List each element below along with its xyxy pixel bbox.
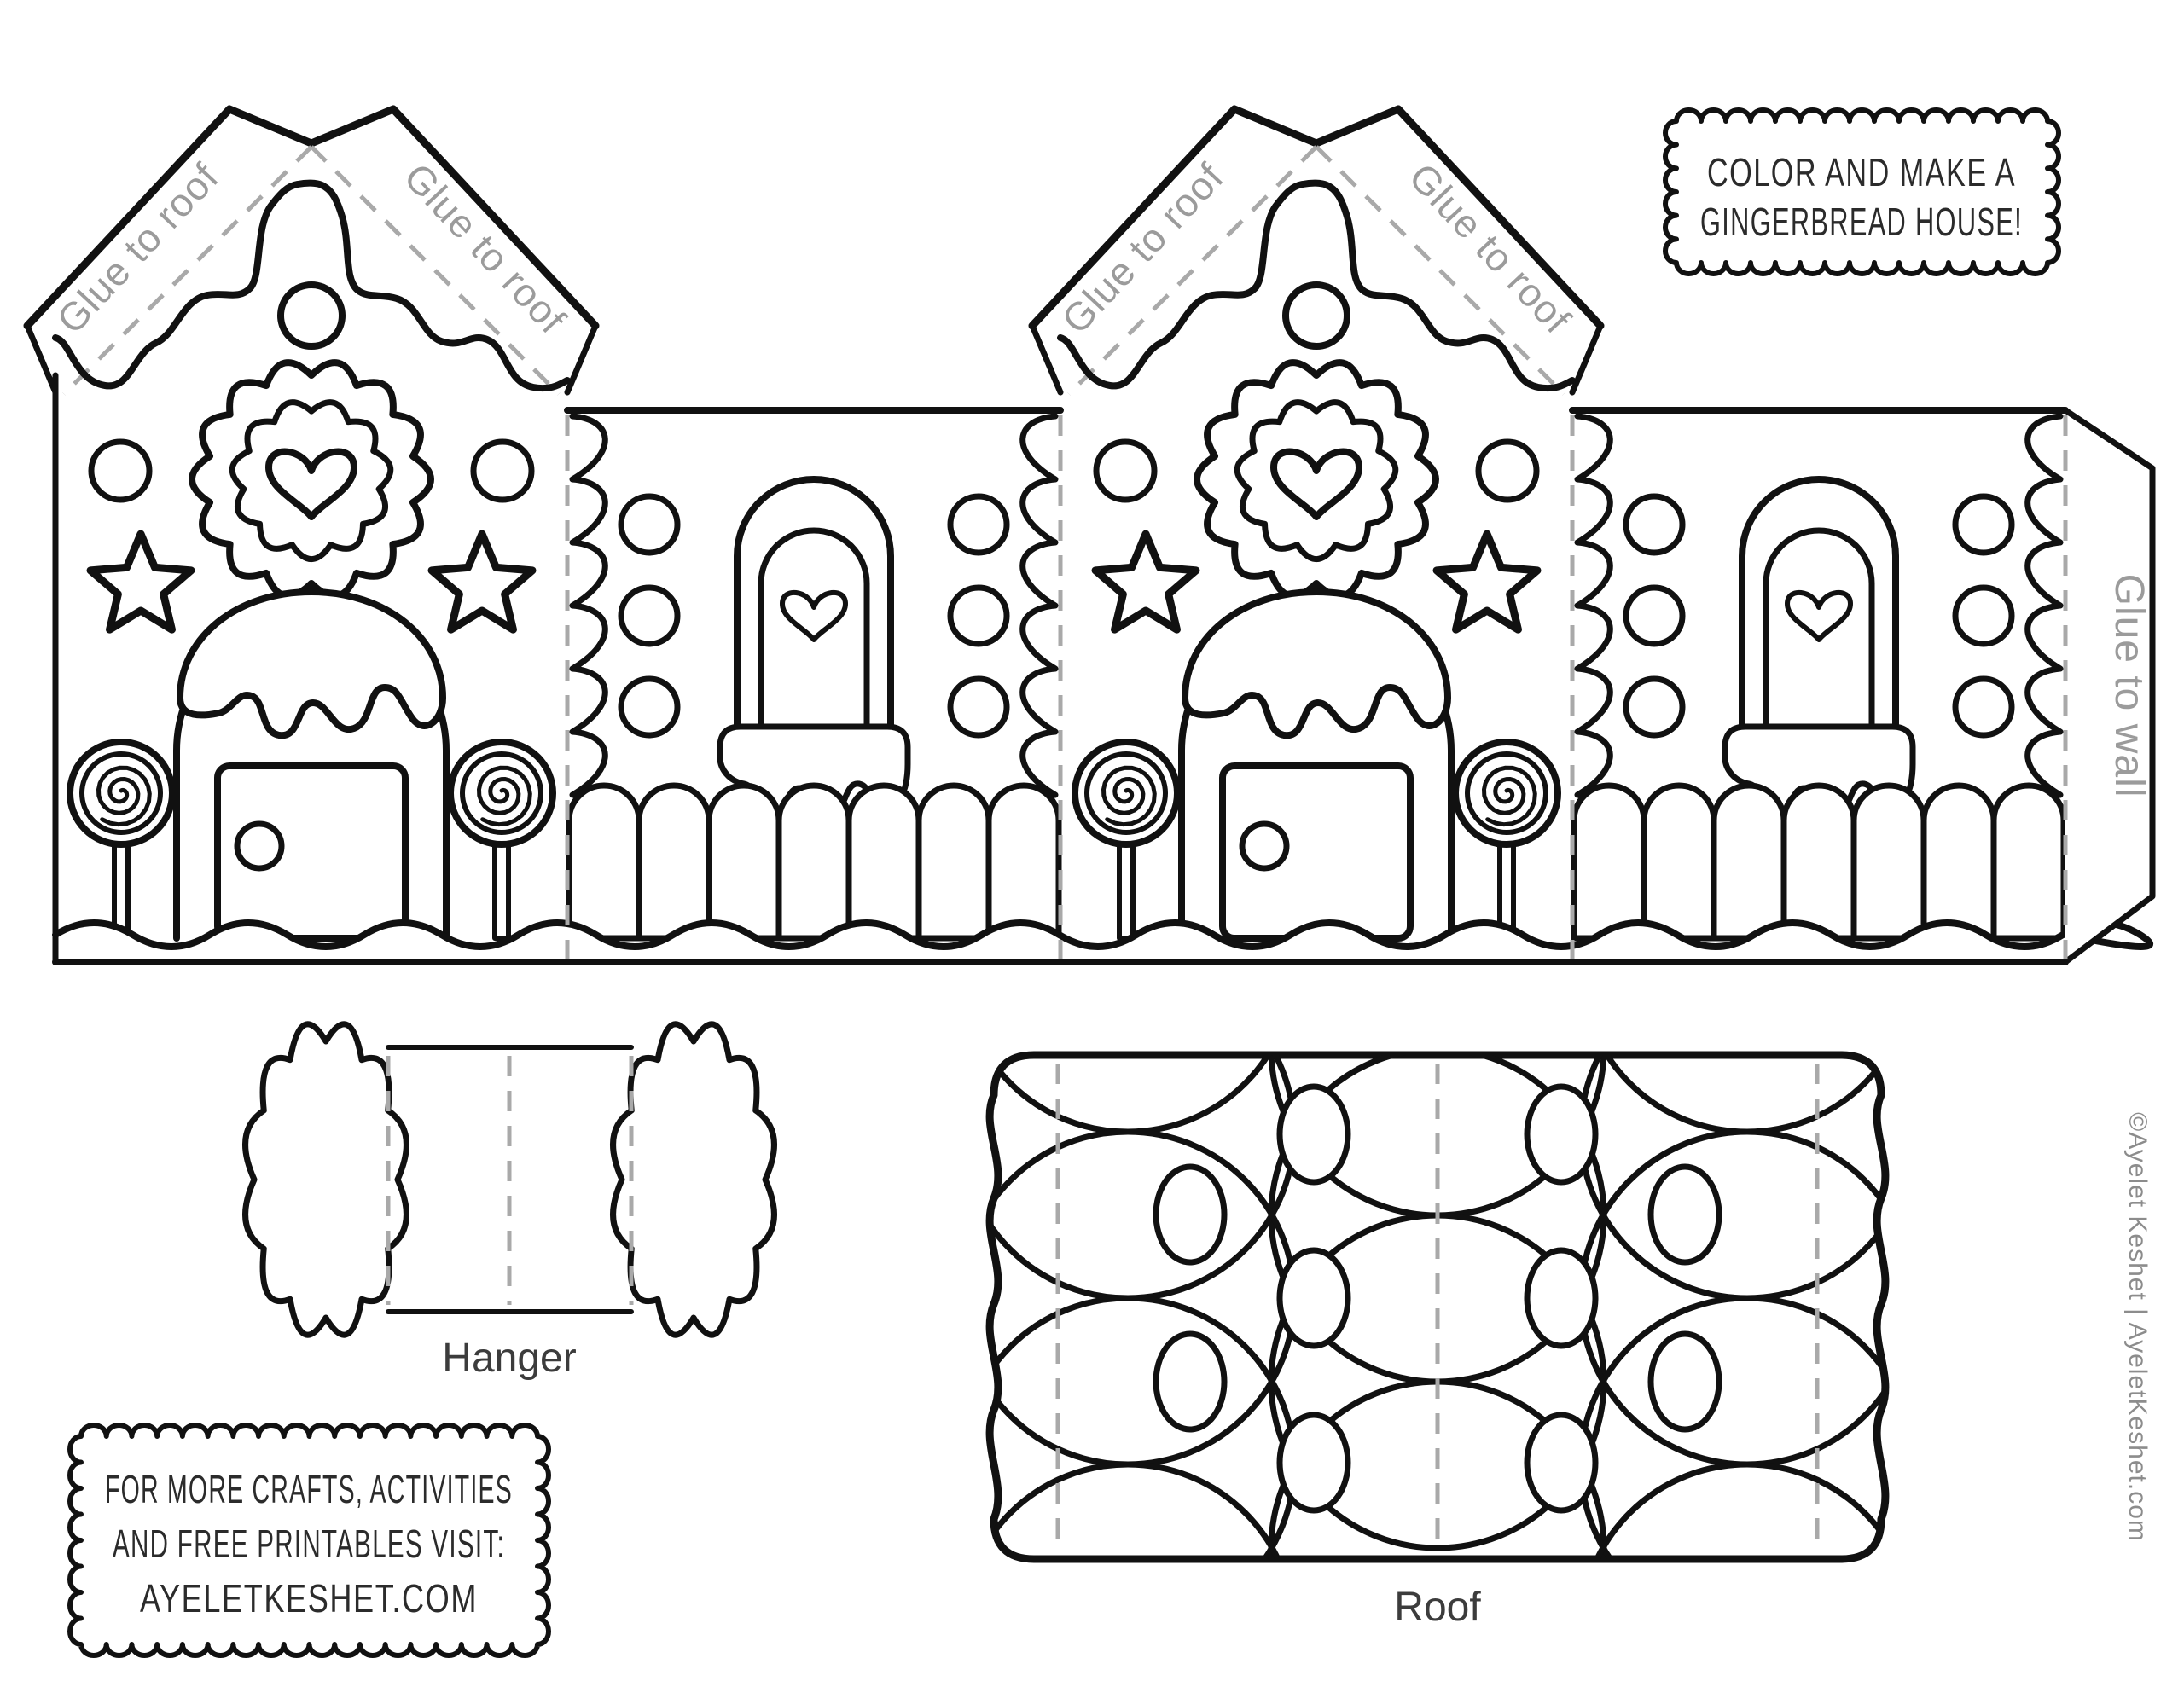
roof-label: Roof	[1394, 1585, 1481, 1630]
hanger-scallop-end-left	[246, 1024, 407, 1335]
gumdrop-candy	[1651, 1167, 1719, 1262]
badge-box: COLOR AND MAKE A GINGERBREAD HOUSE!	[1665, 110, 2059, 274]
printable-page: Glue to roof Glue to roof	[0, 0, 2184, 1687]
gumdrop-candy	[1527, 1415, 1595, 1510]
gumdrop-candy	[1527, 1250, 1595, 1346]
hanger-scallop-end-right	[613, 1024, 775, 1335]
glue-tab: Glue to wall	[2065, 410, 2152, 962]
badge-line-2: GINGERBREAD HOUSE!	[1700, 200, 2023, 244]
gumdrop-candy	[1280, 1415, 1348, 1510]
hanger-label: Hanger	[442, 1336, 576, 1381]
gumdrop-candy	[1156, 1167, 1224, 1262]
house-facade-1	[27, 109, 595, 938]
glue-to-wall-label: Glue to wall	[2106, 574, 2152, 798]
hanger-piece: Hanger	[246, 1024, 775, 1381]
footer-line-1: FOR MORE CRAFTS, ACTIVITIES	[105, 1467, 513, 1511]
hanger-fold-lines	[388, 1056, 631, 1305]
gingerbread-house-template-figure: Glue to roof Glue to roof	[0, 0, 2184, 1687]
gumdrop-candy	[1156, 1334, 1224, 1429]
gumdrop-candy	[1280, 1087, 1348, 1182]
footer-box: FOR MORE CRAFTS, ACTIVITIES AND FREE PRI…	[70, 1425, 549, 1655]
footer-line-3: AYELETKESHET.COM	[140, 1576, 478, 1620]
copyright-credit: ©Ayelet Keshet | AyeletKeshet.com	[2123, 1112, 2152, 1542]
footer-line-2: AND FREE PRINTABLES VISIT:	[113, 1522, 505, 1566]
wall-section-1	[569, 416, 1059, 938]
wall-section-2	[1574, 416, 2064, 938]
gumdrop-candy	[1527, 1087, 1595, 1182]
badge-line-1: COLOR AND MAKE A	[1707, 150, 2016, 194]
house-facade-2	[1032, 109, 1600, 938]
gumdrop-candy	[1651, 1334, 1719, 1429]
gumdrop-candy	[1280, 1250, 1348, 1346]
